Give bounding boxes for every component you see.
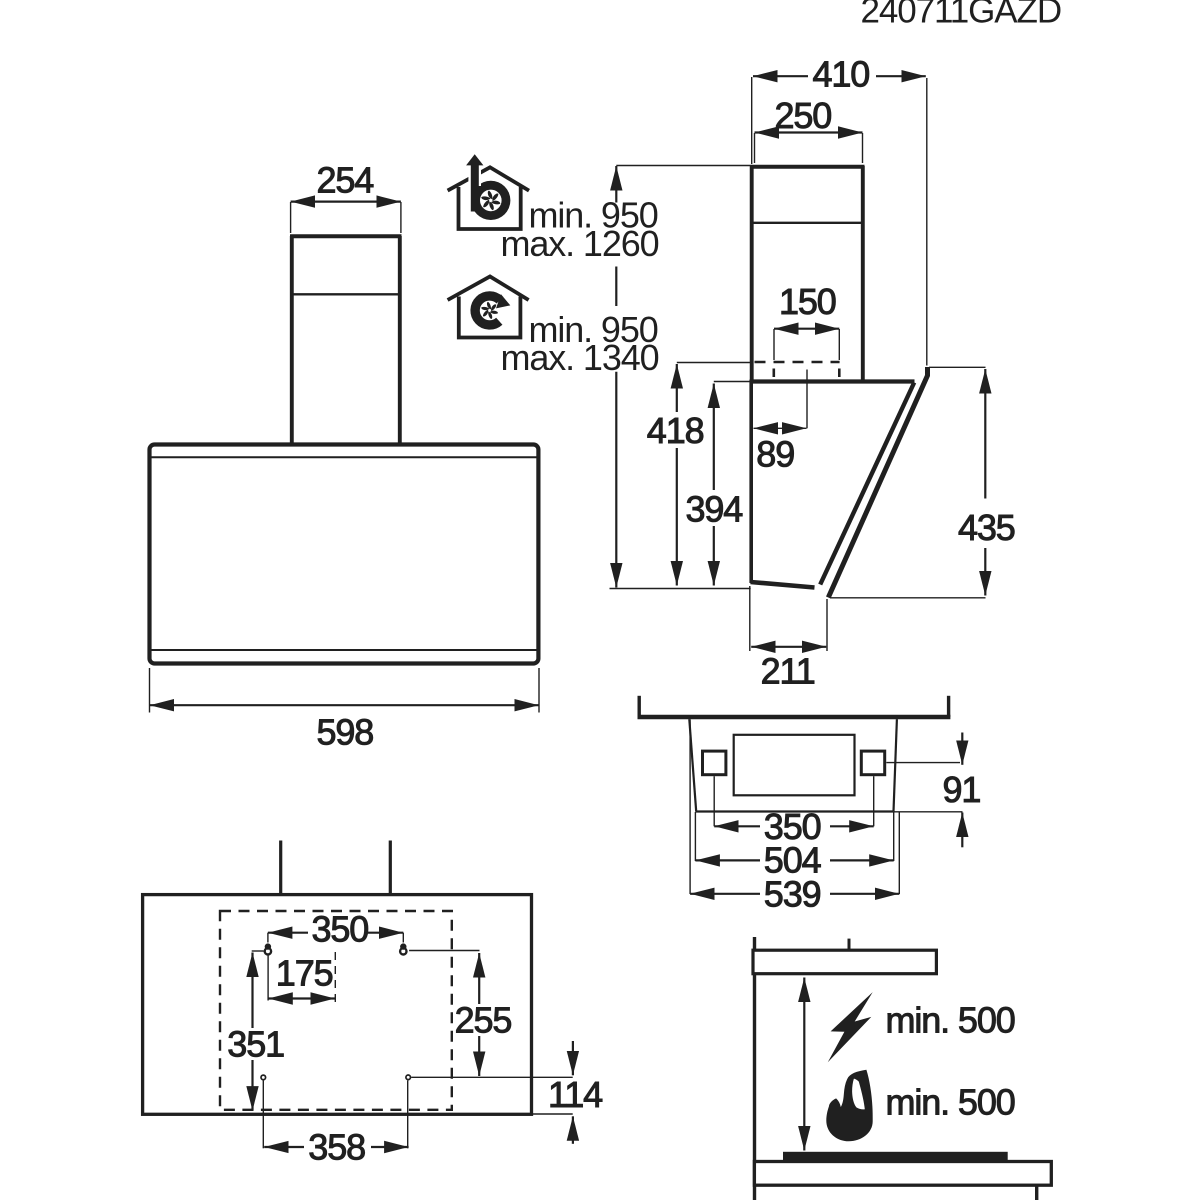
svg-text:539: 539 — [764, 874, 821, 915]
svg-text:598: 598 — [317, 712, 374, 753]
svg-text:114: 114 — [548, 1074, 602, 1115]
svg-text:435: 435 — [958, 507, 1015, 548]
svg-text:255: 255 — [455, 1000, 512, 1041]
svg-text:350: 350 — [312, 909, 369, 950]
svg-text:89: 89 — [756, 434, 794, 475]
svg-text:394: 394 — [686, 489, 743, 530]
svg-text:max. 1260: max. 1260 — [501, 223, 659, 264]
svg-text:min. 500: min. 500 — [886, 1082, 1015, 1123]
svg-text:250: 250 — [775, 95, 832, 136]
svg-text:150: 150 — [779, 281, 836, 322]
svg-text:211: 211 — [761, 651, 815, 692]
svg-text:max. 1340: max. 1340 — [501, 337, 659, 378]
svg-text:240711GAZD: 240711GAZD — [861, 0, 1062, 31]
svg-text:min. 500: min. 500 — [886, 1000, 1015, 1041]
svg-text:418: 418 — [647, 410, 704, 451]
svg-text:410: 410 — [813, 53, 870, 94]
svg-text:91: 91 — [943, 769, 981, 810]
svg-text:351: 351 — [227, 1024, 284, 1065]
svg-text:254: 254 — [317, 160, 374, 201]
svg-text:358: 358 — [308, 1127, 365, 1168]
svg-text:175: 175 — [276, 953, 333, 994]
